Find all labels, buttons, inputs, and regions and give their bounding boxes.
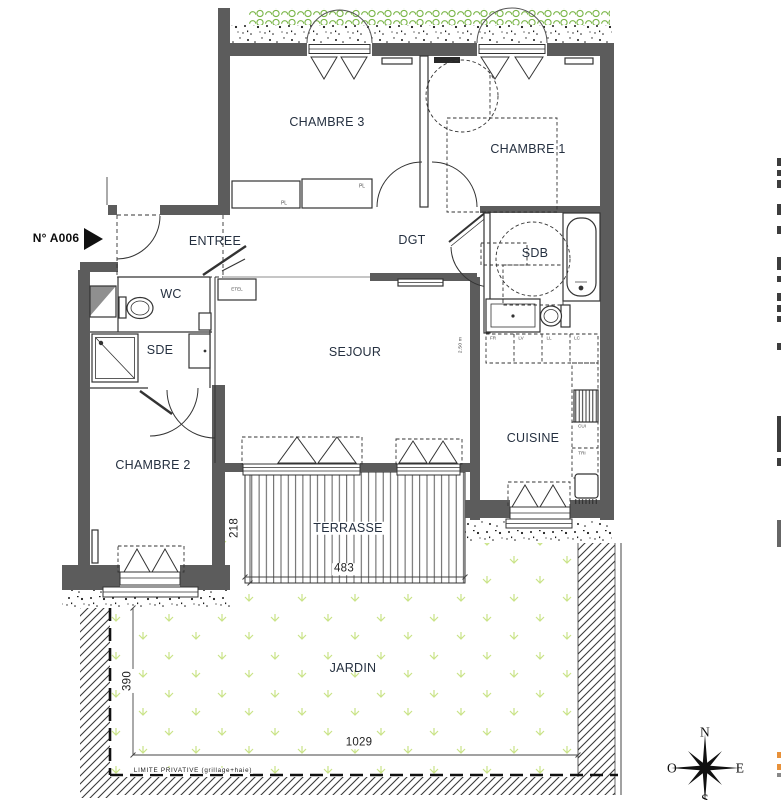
dim-terrasse-width: 483: [332, 563, 356, 575]
radiator-icon: [565, 58, 593, 64]
dim-jardin-depth: 390: [122, 669, 134, 693]
room-label-chambre2: CHAMBRE 2: [115, 459, 190, 472]
closet-label-etel: ETEL: [231, 288, 243, 293]
room-label-cuisine: CUISINE: [507, 432, 559, 445]
closet-pl-left: [232, 181, 300, 208]
dim-terrasse-depth: 218: [229, 516, 241, 540]
compass-rose-icon: [671, 734, 739, 800]
compass-west-label: O: [667, 761, 677, 775]
compass-north-label: N: [700, 725, 710, 739]
dim-ceiling-height: 2.50 m: [460, 337, 465, 353]
room-label-sde: SDE: [147, 344, 173, 357]
floor-plan-drawing: [0, 0, 781, 800]
room-label-wc: WC: [160, 288, 181, 301]
dim-jardin-width: 1029: [344, 737, 375, 749]
room-label-sejour: SEJOUR: [329, 346, 381, 359]
appliance-label-fr: FR: [490, 337, 496, 342]
room-label-dgt: DGT: [398, 234, 425, 247]
gutter: [615, 543, 621, 795]
kitchen-tall-unit: [574, 390, 598, 422]
cropped-edge-artifacts: [777, 158, 781, 777]
room-label-terrasse: TERRASSE: [311, 522, 384, 535]
toilet-icon: [561, 305, 570, 327]
room-label-entree: ENTREE: [189, 235, 241, 248]
toilet-icon: [119, 297, 126, 318]
compass-east-label: E: [736, 761, 745, 775]
closet-label-pl: PL: [281, 202, 287, 207]
hatch-left: [80, 608, 110, 798]
floor-plan: N° A006 CHAMBRE 3 CHAMBRE 1 ENTREE DGT W…: [0, 0, 781, 800]
room-label-jardin: JARDIN: [330, 662, 377, 675]
room-label-sdb: SDB: [522, 247, 548, 260]
closet-label-pl: PL: [359, 185, 365, 190]
appliance-label-cui: CUI: [578, 425, 586, 430]
room-label-chambre3: CHAMBRE 3: [289, 116, 364, 129]
gravel-top: [230, 25, 612, 44]
appliance-label-ll: LL: [546, 337, 551, 342]
radiator-icon: [382, 58, 412, 64]
oven-icon: [575, 474, 598, 498]
boundary-label: LIMITE PRIVATIVE (grillage+haie): [133, 768, 253, 774]
hatch-bottom: [80, 777, 618, 795]
compass-south-label: S: [701, 792, 709, 800]
appliance-label-lc: LC: [574, 337, 580, 342]
unit-label: N° A006: [33, 232, 79, 244]
hedge-band: [248, 8, 610, 26]
appliance-label-lv: LV: [518, 337, 523, 342]
appliance-label-tri: TRI: [578, 452, 585, 457]
room-label-chambre1: CHAMBRE 1: [490, 143, 565, 156]
hatch-right: [578, 543, 615, 777]
